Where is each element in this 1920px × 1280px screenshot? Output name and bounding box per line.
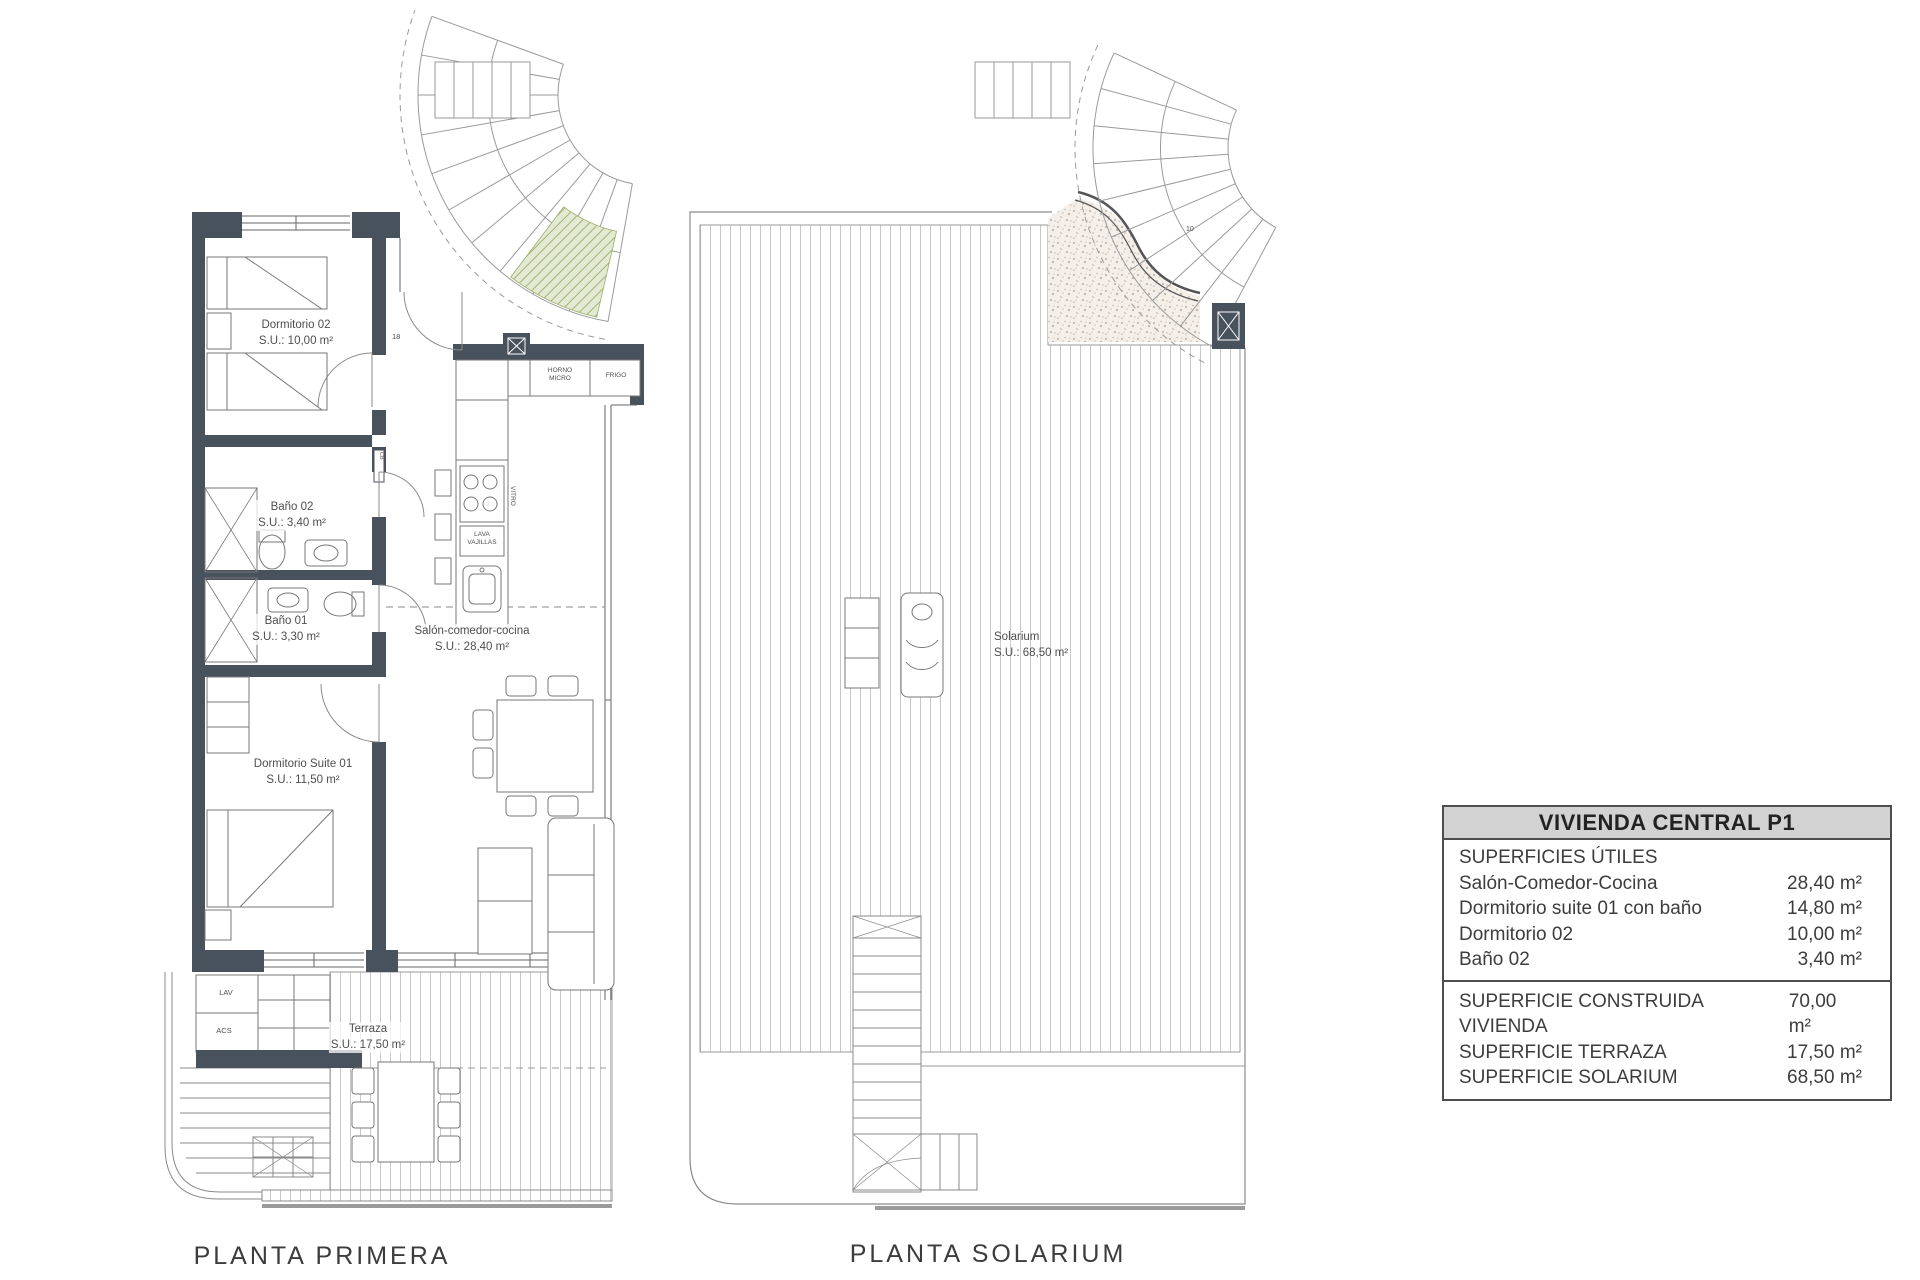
row-value: 68,50 m² [1787, 1065, 1862, 1091]
room-label-terraza: Terraza S.U.: 17,50 m² [329, 1022, 407, 1053]
label-vitro: VITRO [509, 486, 516, 506]
room-label-bano01: Baño 01 S.U.: 3,30 m² [250, 614, 322, 645]
row-label: Salón-Comedor-Cocina [1459, 871, 1658, 897]
row-value: 28,40 m² [1787, 871, 1862, 897]
row-label: SUPERFICIE SOLARIUM [1459, 1065, 1678, 1091]
room-label-solarium: Solarium S.U.: 68,50 m² [992, 630, 1070, 661]
table-row: SUPERFICIE CONSTRUIDA VIVIENDA 70,00 m² [1444, 989, 1890, 1040]
table-row: Dormitorio suite 01 con baño 14,80 m² [1444, 896, 1890, 922]
row-value: 17,50 m² [1787, 1040, 1862, 1066]
row-value: 3,40 m² [1798, 947, 1862, 973]
kitchen-units [435, 360, 640, 628]
row-label: Dormitorio suite 01 con baño [1459, 896, 1702, 922]
suite01-furniture [205, 677, 333, 940]
row-label: SUPERFICIES ÚTILES [1459, 845, 1658, 871]
table-row: Salón-Comedor-Cocina 28,40 m² [1444, 871, 1890, 897]
sofa-set [478, 818, 614, 990]
total-surfaces-section: SUPERFICIE CONSTRUIDA VIVIENDA 70,00 m² … [1444, 980, 1890, 1099]
room-label-bano02: Baño 02 S.U.: 3,40 m² [256, 500, 328, 531]
row-value: 14,80 m² [1787, 896, 1862, 922]
table-row: SUPERFICIE SOLARIUM 68,50 m² [1444, 1065, 1890, 1091]
label-step-count-primera: 18 [392, 332, 400, 341]
row-value: 10,00 m² [1787, 922, 1862, 948]
terraza-dining-set [352, 1062, 460, 1162]
label-cb: CB [378, 452, 384, 460]
plan-solarium-drawing [690, 45, 1276, 1208]
surface-summary-table: VIVIENDA CENTRAL P1 SUPERFICIES ÚTILES S… [1442, 805, 1892, 1101]
table-row: Dormitorio 02 10,00 m² [1444, 922, 1890, 948]
row-label: Baño 02 [1459, 947, 1530, 973]
row-label: SUPERFICIE TERRAZA [1459, 1040, 1667, 1066]
room-label-salon: Salón-comedor-cocina S.U.: 28,40 m² [412, 624, 531, 655]
label-lavavajillas: LAVA VAJILLAS [467, 531, 496, 547]
label-acs: ACS [216, 1026, 231, 1035]
useful-surfaces-section: SUPERFICIES ÚTILES Salón-Comedor-Cocina … [1444, 840, 1890, 980]
table-row: Baño 02 3,40 m² [1444, 947, 1890, 973]
label-frigo: FRIGO [606, 372, 627, 380]
row-label: SUPERFICIE CONSTRUIDA VIVIENDA [1459, 989, 1789, 1040]
plan-title-primera: PLANTA PRIMERA [194, 1242, 451, 1271]
row-label: Dormitorio 02 [1459, 922, 1573, 948]
label-horno-micro: HORNO MICRO [548, 367, 572, 383]
table-row: SUPERFICIE TERRAZA 17,50 m² [1444, 1040, 1890, 1066]
label-step-count-solarium: 10 [1186, 226, 1194, 233]
floorplan-page: Dormitorio 02 S.U.: 10,00 m² Baño 02 S.U… [0, 0, 1920, 1280]
label-lav: LAV [219, 988, 233, 997]
room-label-dormitorio02: Dormitorio 02 S.U.: 10,00 m² [257, 318, 335, 349]
room-label-suite01: Dormitorio Suite 01 S.U.: 11,50 m² [252, 757, 354, 788]
dining-set [473, 676, 593, 816]
section-header-row: SUPERFICIES ÚTILES [1444, 845, 1890, 871]
table-title: VIVIENDA CENTRAL P1 [1444, 807, 1890, 840]
row-value: 70,00 m² [1789, 989, 1862, 1040]
plan-title-solarium: PLANTA SOLARIUM [850, 1240, 1127, 1269]
